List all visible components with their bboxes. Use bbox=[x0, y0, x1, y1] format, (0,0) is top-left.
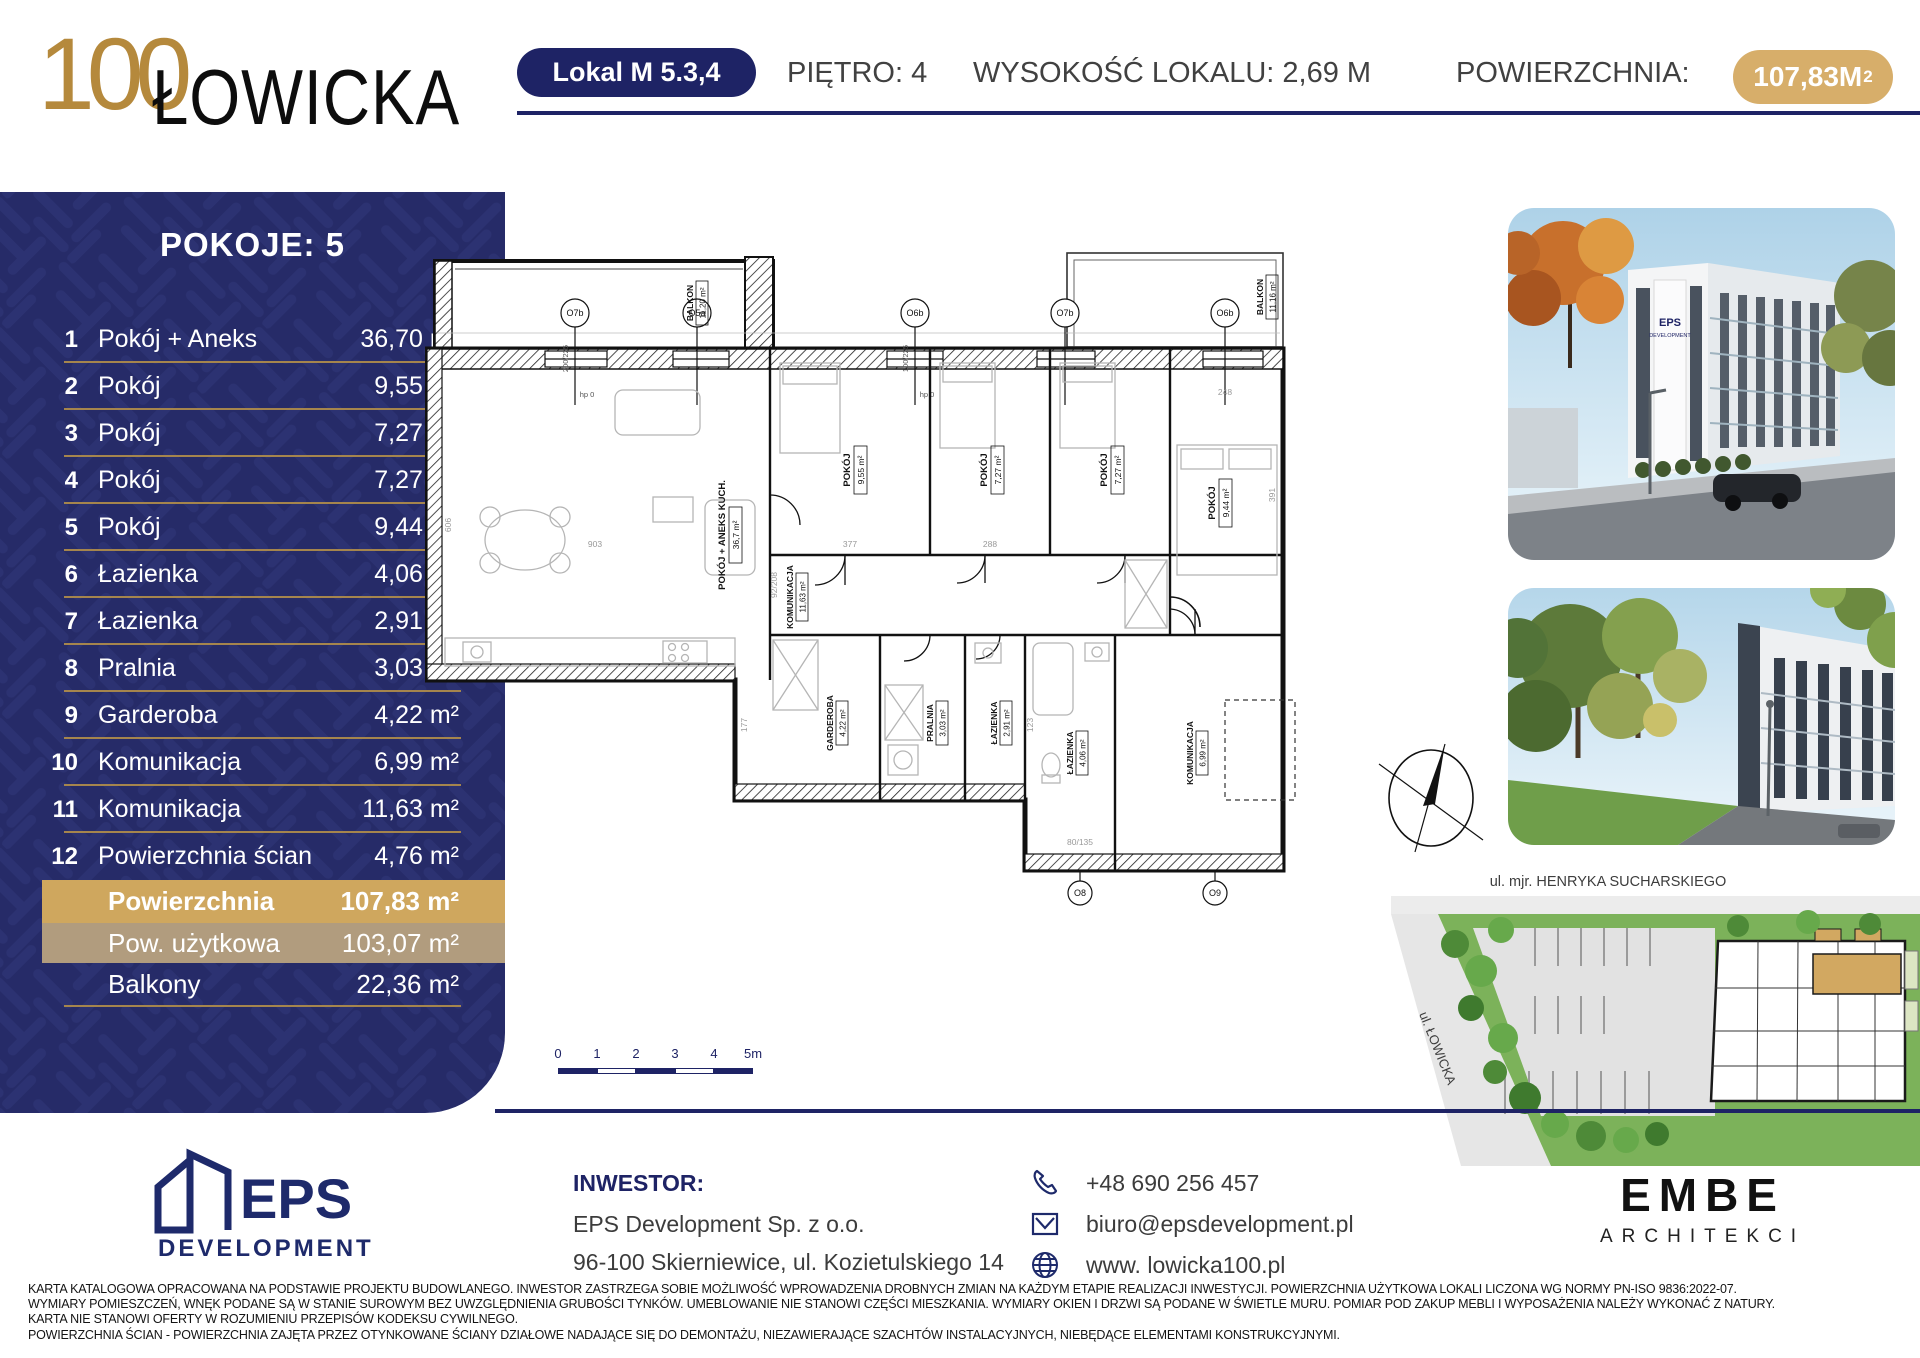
row-no: 6 bbox=[0, 561, 78, 589]
svg-text:903: 903 bbox=[588, 539, 602, 549]
room-name: GARDEROBA bbox=[825, 695, 835, 751]
row-name: Pralnia bbox=[98, 654, 176, 683]
row-name: Łazienka bbox=[98, 607, 198, 636]
balcony-name: BALKON bbox=[685, 285, 695, 321]
footer-divider bbox=[495, 1109, 1920, 1113]
total-area-label: Powierzchnia bbox=[108, 886, 274, 917]
eps-house-icon bbox=[158, 1154, 228, 1230]
area-value-pill: 107,83M2 bbox=[1733, 50, 1893, 104]
row-name: Pokój bbox=[98, 513, 161, 542]
window-code: O9 bbox=[1209, 888, 1221, 898]
street-top-road bbox=[1391, 896, 1920, 914]
balcony-name: BALKON bbox=[1255, 279, 1265, 315]
room-name: ŁAZIENKA bbox=[1065, 732, 1075, 775]
row-no: 12 bbox=[0, 843, 78, 871]
room-name: KOMUNIKACJA bbox=[1185, 721, 1195, 785]
room-area: 6,99 m² bbox=[1199, 739, 1208, 766]
row-no: 3 bbox=[0, 420, 78, 448]
scale-label: 1 bbox=[587, 1046, 607, 1061]
scale-label: 2 bbox=[626, 1046, 646, 1061]
svg-text:288: 288 bbox=[983, 539, 997, 549]
room-name: KOMUNIKACJA bbox=[785, 565, 795, 629]
usable-area-value: 103,07 m² bbox=[342, 928, 459, 959]
room-area: 36,7 m² bbox=[731, 520, 741, 549]
globe-icon bbox=[1030, 1250, 1060, 1280]
svg-text:DEVELOPMENT: DEVELOPMENT bbox=[1649, 333, 1691, 339]
row-name: Pokój bbox=[98, 466, 161, 495]
email-icon bbox=[1030, 1209, 1060, 1239]
floor-plan: O7b O5a O6b O7b O6b 200/225 100/225 hp 0… bbox=[425, 245, 1305, 910]
site-plan: ul. mjr. HENRYKA SUCHARSKIEGO bbox=[1383, 866, 1920, 1166]
balcony-area: 11,20 m² bbox=[699, 287, 708, 318]
investor-name: EPS Development Sp. z o.o. bbox=[573, 1211, 1004, 1238]
scale-bar: 0 1 2 3 4 5m bbox=[558, 1046, 790, 1080]
room-area: 2,91 m² bbox=[1003, 709, 1012, 736]
area-label: POWIERZCHNIA: bbox=[1456, 57, 1690, 90]
phone-number: +48 690 256 457 bbox=[1086, 1170, 1259, 1197]
apartment-outline bbox=[427, 349, 1283, 870]
row-no: 9 bbox=[0, 702, 78, 730]
row-no: 11 bbox=[0, 796, 78, 824]
scale-label: 4 bbox=[704, 1046, 724, 1061]
row-no: 10 bbox=[0, 749, 78, 777]
room-area: 11,63 m² bbox=[799, 581, 808, 612]
window-code: O6b bbox=[906, 308, 923, 318]
row-no: 1 bbox=[0, 326, 78, 354]
window-code: O7b bbox=[566, 308, 583, 318]
usable-area-bar: Pow. użytkowa 103,07 m² bbox=[42, 923, 505, 963]
row-name: Pokój bbox=[98, 372, 161, 401]
embe-sub: ARCHITEKCI bbox=[1600, 1226, 1805, 1248]
svg-text:123: 123 bbox=[1025, 718, 1035, 732]
window-code: O7b bbox=[1056, 308, 1073, 318]
height-label: WYSOKOŚĆ LOKALU: 2,69 M bbox=[973, 57, 1371, 90]
room-area: 9,44 m² bbox=[1221, 488, 1231, 517]
legal-disclaimer: KARTA KATALOGOWA OPRACOWANA NA PODSTAWIE… bbox=[28, 1282, 1908, 1343]
unit-badge: Lokal M 5.3,4 bbox=[517, 48, 756, 97]
balcony-label: Balkony bbox=[108, 969, 201, 1000]
window-code: O6b bbox=[1216, 308, 1233, 318]
floor-label: PIĘTRO: 4 bbox=[787, 57, 927, 90]
embe-name: EMBE bbox=[1600, 1168, 1805, 1222]
website-url: www. lowicka100.pl bbox=[1086, 1252, 1285, 1279]
room-area: 4,22 m² bbox=[839, 709, 848, 736]
investor-block: INWESTOR: EPS Development Sp. z o.o. 96-… bbox=[573, 1170, 1004, 1276]
room-name: POKÓJ bbox=[841, 453, 853, 486]
site-building bbox=[1711, 929, 1918, 1101]
row-name: Komunikacja bbox=[98, 748, 241, 777]
room-area: 4,06 m² bbox=[1079, 739, 1088, 766]
row-name: Łazienka bbox=[98, 560, 198, 589]
hp-label: hp 0 bbox=[580, 390, 595, 399]
logo-lowicka: ŁOWICKA bbox=[152, 52, 460, 143]
balcony-value: 22,36 m² bbox=[356, 969, 459, 1000]
investor-address: 96-100 Skierniewice, ul. Kozietulskiego … bbox=[573, 1249, 1004, 1276]
row-no: 4 bbox=[0, 467, 78, 495]
building-photo-1: EPS DEVELOPMENT bbox=[1508, 208, 1895, 560]
svg-text:606: 606 bbox=[443, 518, 453, 532]
row-name: Pokój bbox=[98, 419, 161, 448]
eps-name: EPS bbox=[240, 1167, 352, 1230]
room-name: ŁAZIENKA bbox=[989, 702, 999, 745]
embe-logo: EMBE ARCHITEKCI bbox=[1600, 1168, 1805, 1248]
scale-label: 5m bbox=[743, 1046, 763, 1061]
scale-label: 0 bbox=[548, 1046, 568, 1061]
contact-block: +48 690 256 457 biuro@epsdevelopment.pl … bbox=[1030, 1168, 1450, 1288]
row-no: 2 bbox=[0, 373, 78, 401]
balcony-top-left bbox=[435, 257, 773, 349]
summary-rule bbox=[64, 1005, 461, 1007]
usable-area-label: Pow. użytkowa bbox=[108, 928, 280, 959]
eps-sub: DEVELOPMENT bbox=[158, 1235, 374, 1262]
area-value: 107,83M bbox=[1753, 61, 1862, 93]
row-name: Pokój + Aneks bbox=[98, 325, 257, 354]
balcony-area-row: Balkony 22,36 m² bbox=[42, 963, 505, 1005]
row-no: 5 bbox=[0, 514, 78, 542]
row-no: 8 bbox=[0, 655, 78, 683]
room-name: POKÓJ bbox=[1206, 486, 1218, 519]
window-code: O8 bbox=[1074, 888, 1086, 898]
highlighted-unit bbox=[1813, 954, 1901, 994]
eps-development-logo: EPS DEVELOPMENT bbox=[148, 1142, 388, 1262]
svg-text:391: 391 bbox=[1267, 488, 1277, 502]
north-compass-icon bbox=[1375, 742, 1487, 854]
header-rule bbox=[517, 111, 1920, 115]
catalog-card: 100 ŁOWICKA Lokal M 5.3,4 PIĘTRO: 4 WYSO… bbox=[0, 0, 1920, 1358]
investor-heading: INWESTOR: bbox=[573, 1170, 1004, 1197]
legal-line: POWIERZCHNIA ŚCIAN - POWIERZCHNIA ZAJĘTA… bbox=[28, 1328, 1908, 1343]
window-markers-bottom: O8 O9 bbox=[1068, 870, 1227, 905]
row-name: Powierzchnia ścian bbox=[98, 842, 312, 871]
svg-text:80/135: 80/135 bbox=[1067, 837, 1093, 847]
room-area: 7,27 m² bbox=[993, 455, 1003, 484]
room-area: 9,55 m² bbox=[856, 455, 866, 484]
room-name: POKÓJ bbox=[978, 453, 990, 486]
hp-label: hp 0 bbox=[920, 390, 935, 399]
building-photo-2 bbox=[1508, 588, 1895, 845]
window-dim: 100/225 bbox=[901, 345, 910, 372]
row-name: Komunikacja bbox=[98, 795, 241, 824]
window-dim: 200/225 bbox=[561, 345, 570, 372]
svg-text:92/208: 92/208 bbox=[769, 572, 779, 598]
room-name: POKÓJ bbox=[1098, 453, 1110, 486]
legal-line: KARTA KATALOGOWA OPRACOWANA NA PODSTAWIE… bbox=[28, 1282, 1908, 1297]
room-name: POKÓJ + ANEKS KUCH. bbox=[716, 480, 728, 590]
room-name: PRALNIA bbox=[925, 704, 935, 742]
phone-icon bbox=[1030, 1168, 1060, 1198]
room-area: 7,27 m² bbox=[1113, 455, 1123, 484]
scale-label: 3 bbox=[665, 1046, 685, 1061]
room-area: 3,03 m² bbox=[939, 709, 948, 736]
balcony-area: 11,16 m² bbox=[1269, 281, 1278, 312]
legal-line: KARTA NIE STANOWI OFERTY W ROZUMIENIU PR… bbox=[28, 1312, 1908, 1327]
row-name: Garderoba bbox=[98, 701, 218, 730]
legal-line: WYMIARY POMIESZCZEŃ, WNĘK PODANE SĄ W ST… bbox=[28, 1297, 1908, 1312]
street-label-top: ul. mjr. HENRYKA SUCHARSKIEGO bbox=[1490, 874, 1727, 890]
email-address: biuro@epsdevelopment.pl bbox=[1086, 1211, 1354, 1238]
area-sup: 2 bbox=[1863, 67, 1872, 87]
row-no: 7 bbox=[0, 608, 78, 636]
svg-text:248: 248 bbox=[1218, 387, 1232, 397]
svg-text:EPS: EPS bbox=[1659, 317, 1681, 329]
svg-text:377: 377 bbox=[843, 539, 857, 549]
svg-text:177: 177 bbox=[739, 718, 749, 732]
